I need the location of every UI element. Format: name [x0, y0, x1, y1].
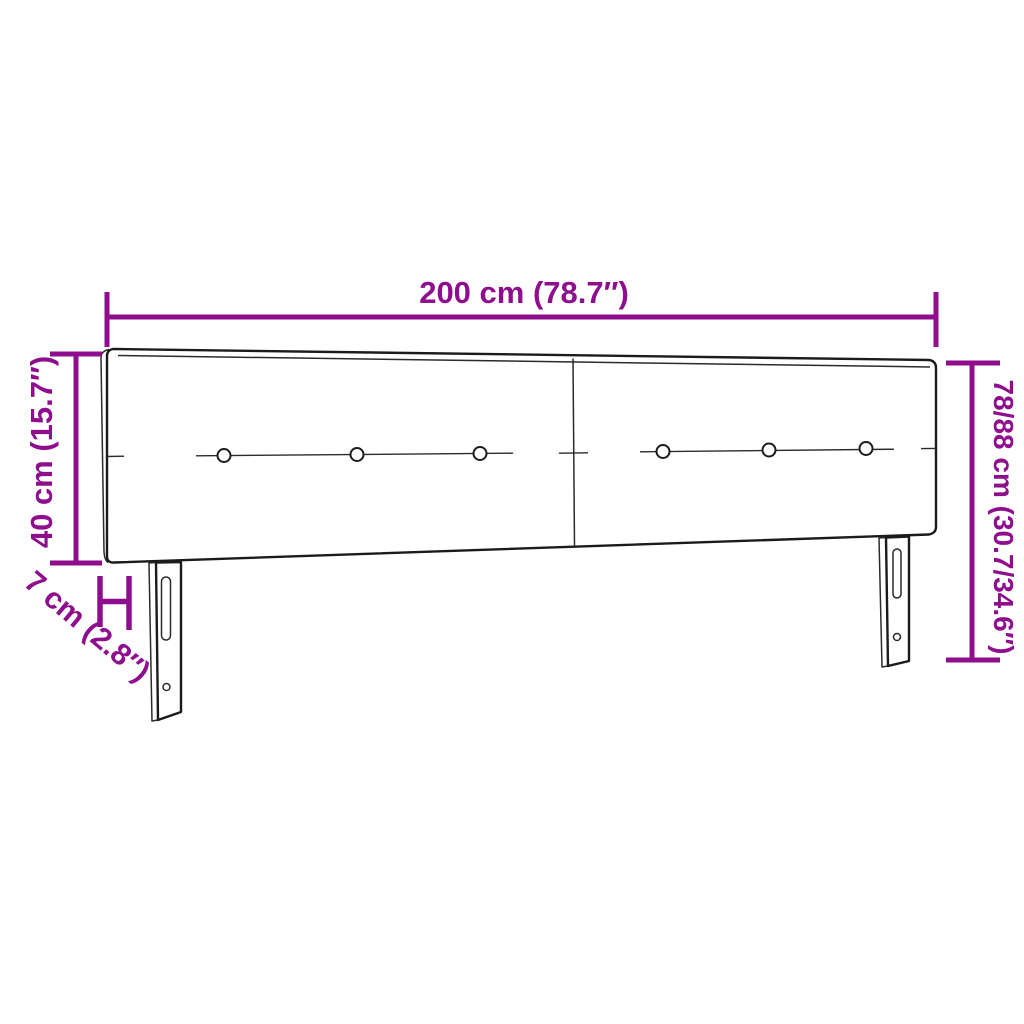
- right-leg: [879, 537, 909, 668]
- upholstery-button: [763, 444, 776, 457]
- left-leg: [149, 562, 181, 721]
- headboard-drawing: [101, 349, 936, 721]
- right-leg-front-face: [886, 537, 909, 667]
- upholstery-button: [218, 449, 231, 462]
- board-height-dimension: 40 cm (15.7″): [24, 354, 102, 563]
- upholstery-button: [351, 448, 364, 461]
- left-leg-front-face: [156, 562, 181, 720]
- upholstery-button: [474, 447, 487, 460]
- depth-dimension-label: 7 cm (2.8″): [18, 565, 156, 688]
- depth-dimension: 7 cm (2.8″): [18, 565, 156, 688]
- board-height-dimension-label: 40 cm (15.7″): [24, 356, 59, 548]
- width-dimension-label: 200 cm (78.7″): [419, 275, 629, 310]
- upholstery-button: [657, 445, 670, 458]
- total-height-dimension: 78/88 cm (30.7/34.6″): [946, 363, 1019, 660]
- upholstery-button: [860, 442, 873, 455]
- product-dimension-diagram: 200 cm (78.7″) 40 cm (15.7″) 78/88 cm (3…: [0, 0, 1024, 1024]
- headboard-diagram-canvas: 200 cm (78.7″) 40 cm (15.7″) 78/88 cm (3…: [0, 0, 1024, 1024]
- total-height-dimension-label: 78/88 cm (30.7/34.6″): [988, 380, 1019, 655]
- width-dimension: 200 cm (78.7″): [107, 275, 936, 347]
